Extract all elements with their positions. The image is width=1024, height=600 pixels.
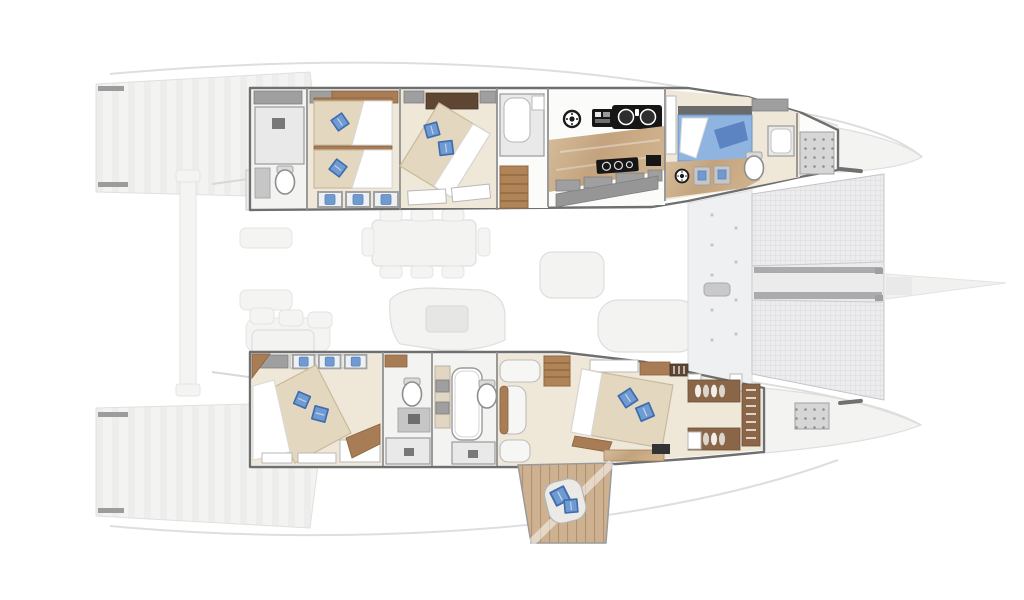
forepeak-locker: [800, 132, 834, 174]
starboard-bow-ghost: [764, 388, 921, 453]
shower: [255, 107, 304, 164]
helm-lounge: [598, 300, 698, 352]
master-stairs: [544, 356, 570, 386]
seat: [500, 440, 530, 462]
dining-table: [372, 220, 476, 266]
private-aft-platform: [518, 463, 612, 543]
head: [384, 352, 432, 466]
toilet-icon: [745, 152, 764, 180]
oven-icon: [646, 155, 661, 166]
transom-step: [98, 508, 124, 513]
catamaran-floor-plan: [0, 0, 1024, 600]
cockpit-bench: [240, 290, 292, 310]
coffee-table: [426, 306, 468, 332]
double-sink-icon: [612, 105, 662, 129]
guest-double-cabin: [252, 352, 383, 466]
transom-step: [98, 86, 124, 91]
hull-window: [298, 453, 336, 463]
bed-frame: [678, 106, 752, 115]
shower-stall: [452, 368, 482, 440]
companionway-console: [540, 252, 604, 298]
porthole-icon: [344, 354, 367, 369]
toilet-icon: [276, 166, 295, 194]
toilet-icon: [478, 380, 497, 408]
washbasin: [532, 96, 544, 110]
porthole-icon: [318, 354, 341, 369]
floor-plan-svg: [0, 0, 1024, 600]
overhead-locker: [254, 91, 302, 104]
porthole-icon: [317, 191, 343, 208]
toilet-icon: [403, 378, 422, 406]
passerelle: [180, 178, 196, 388]
galley: [549, 88, 665, 207]
vip-double-cabin: [400, 88, 497, 210]
hanging-locker: [742, 384, 760, 446]
bow-cleat: [875, 295, 883, 301]
hanger-rail-ticks: [746, 390, 756, 438]
washer-icon: [676, 170, 689, 183]
cockpit-bench: [240, 228, 292, 248]
hull-window: [590, 360, 638, 372]
hull-window: [262, 453, 292, 463]
porthole-icon: [345, 191, 371, 208]
windlass: [704, 283, 730, 296]
trampoline-port: [752, 174, 884, 266]
transom-step: [98, 412, 128, 417]
hull-window: [408, 189, 447, 205]
aft-head: [252, 88, 307, 210]
foredeck: [688, 167, 884, 405]
locker: [640, 362, 670, 375]
forward-cabin: [666, 90, 800, 200]
washer-icon: [564, 111, 580, 127]
shower-room: [433, 352, 497, 466]
cabinet-column: [435, 366, 450, 428]
mid-head: [498, 88, 548, 208]
porthole-icon: [373, 191, 399, 208]
tv: [652, 444, 670, 454]
forepeak-locker: [795, 403, 829, 429]
vanity: [255, 168, 270, 198]
chaise: [500, 360, 540, 382]
dishwasher-icon: [592, 109, 613, 127]
transom-step: [98, 182, 128, 187]
headboard: [426, 93, 478, 109]
starboard-hull: [250, 352, 829, 543]
twin-guest-cabin: [308, 88, 400, 210]
cooktop-icon: [596, 157, 639, 174]
companionway-stairs: [500, 166, 528, 208]
bow-cleat: [875, 268, 883, 274]
